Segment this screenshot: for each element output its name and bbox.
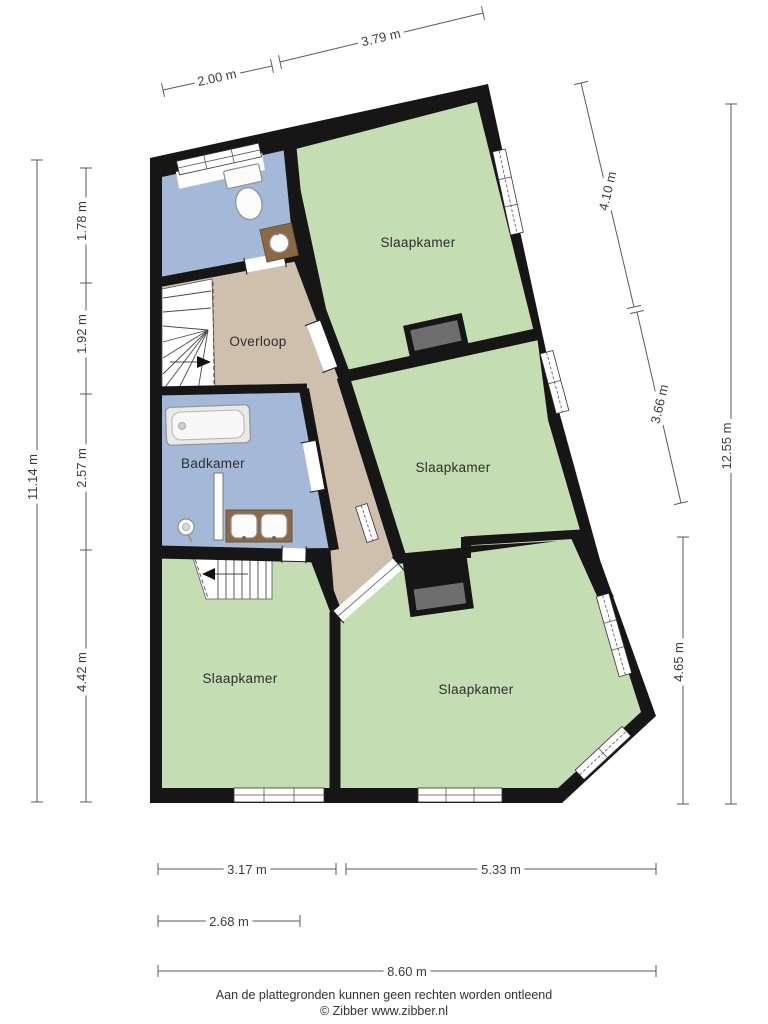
dim-label-bottom-3: 8.60 m <box>387 964 427 979</box>
dim-label-bottom-0: 3.17 m <box>227 862 267 877</box>
dim-label-bottom-1: 5.33 m <box>481 862 521 877</box>
dim-label-right-2: 12.55 m <box>719 423 734 470</box>
dim-label-right-1: 3.66 m <box>648 383 672 425</box>
footer-copyright: © Zibber www.zibber.nl <box>320 1004 448 1018</box>
room-label-slaapkamer-bottom-right: Slaapkamer <box>438 682 513 697</box>
footer-disclaimer: Aan de plattegronden kunnen geen rechten… <box>216 988 552 1002</box>
floorplan-svg: Slaapkamer Slaapkamer Slaapkamer Slaapka… <box>0 0 768 1024</box>
window-bottom-right <box>418 788 502 802</box>
toilet-sink <box>260 223 298 262</box>
dim-label-right-0: 4.10 m <box>596 170 620 212</box>
door-slaapkamer-bottom-left <box>282 546 306 564</box>
dim-label-left-1: 1.92 m <box>74 314 89 354</box>
double-sink <box>226 510 292 542</box>
dim-label-left-0: 1.78 m <box>74 201 89 241</box>
room-label-slaapkamer-top-right: Slaapkamer <box>380 235 455 250</box>
radiator <box>214 473 223 540</box>
dim-label-left-2: 2.57 m <box>74 448 89 488</box>
bathtub <box>165 405 250 446</box>
window-bottom-left <box>234 788 324 802</box>
room-label-slaapkamer-bottom-left: Slaapkamer <box>202 671 277 686</box>
dim-label-left-4: 11.14 m <box>25 454 40 500</box>
chimney-bottom <box>402 549 474 617</box>
room-label-overloop: Overloop <box>229 334 286 349</box>
floorplan-page: Slaapkamer Slaapkamer Slaapkamer Slaapka… <box>0 0 768 1024</box>
dim-label-top-0: 3.79 m <box>360 26 402 50</box>
dim-label-right-3: 4.65 m <box>671 642 686 682</box>
stairs-upper <box>162 279 215 391</box>
room-label-slaapkamer-middle-right: Slaapkamer <box>415 460 490 475</box>
dim-label-left-3: 4.42 m <box>74 652 89 692</box>
dim-label-bottom-2: 2.68 m <box>209 914 249 929</box>
room-label-badkamer: Badkamer <box>181 456 245 471</box>
dim-label-top-1: 2.00 m <box>196 66 238 89</box>
